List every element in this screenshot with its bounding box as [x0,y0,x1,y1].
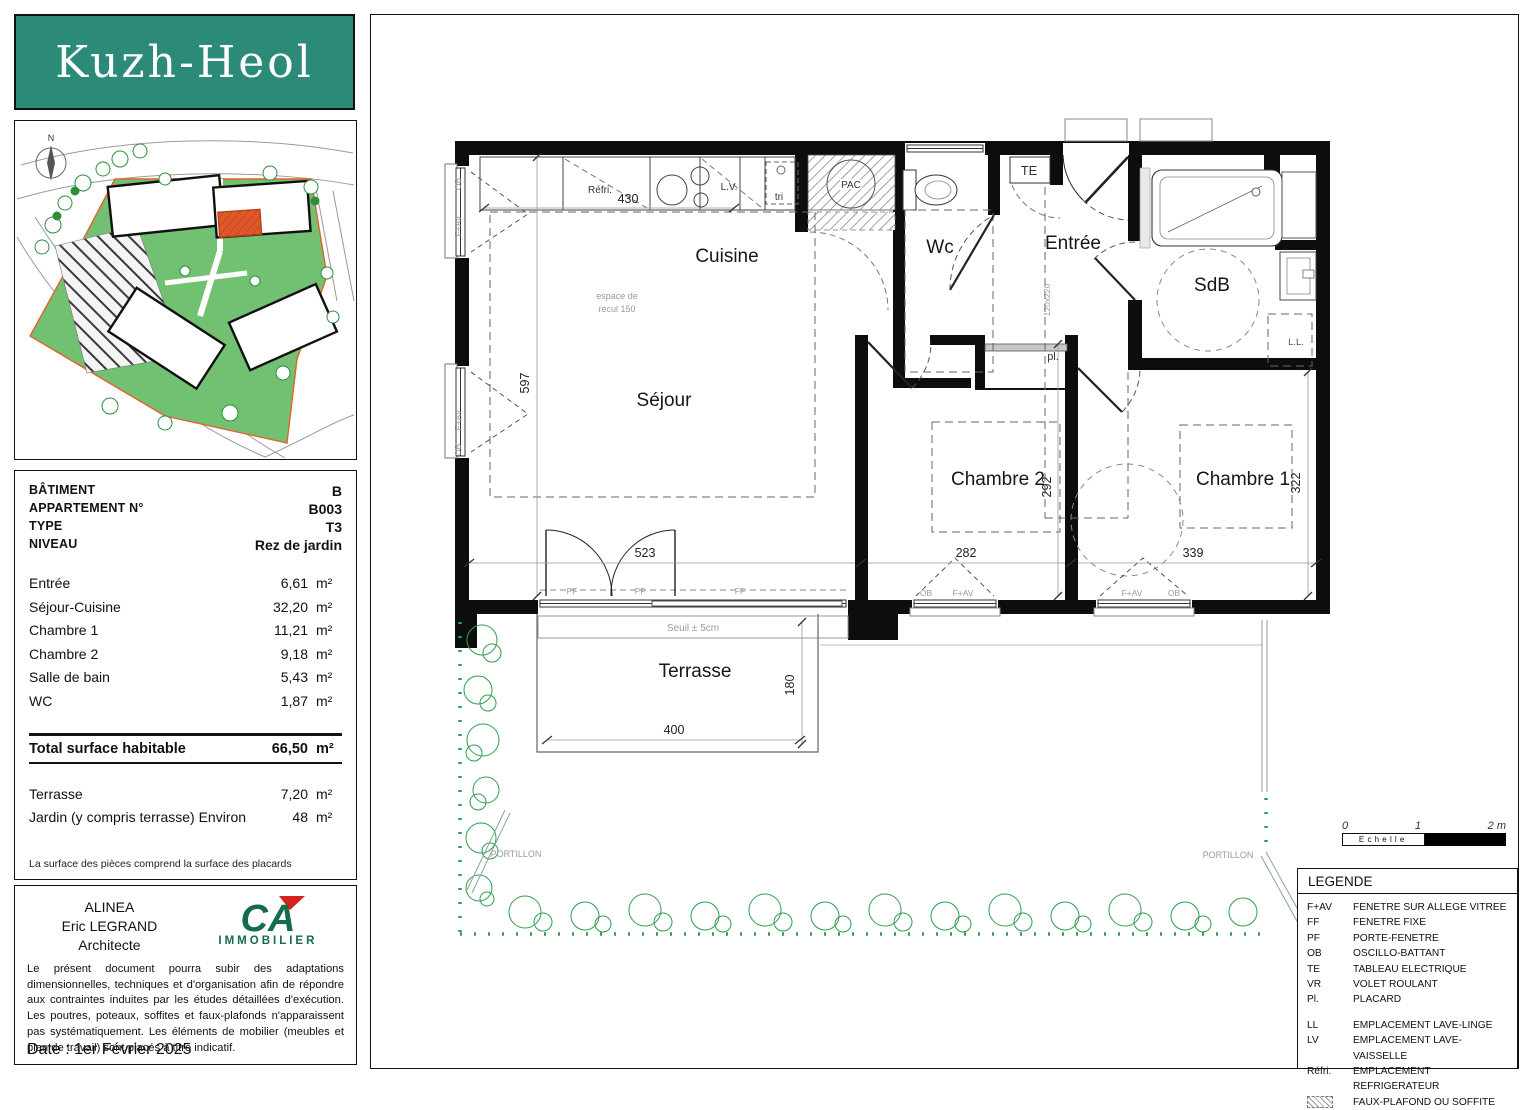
field-label: BÂTIMENT [29,483,95,499]
legend-desc: FENETRE SUR ALLEGE VITREE [1353,900,1508,915]
door-size-label: 120x220 [1042,283,1052,316]
scale-bar: 0 1 2 m Echelle [1342,820,1506,846]
architect-identity: ALINEA Eric LEGRAND Architecte [27,898,192,955]
site-plan-drawing: N [15,121,355,458]
recul-label-1: espace de [596,291,638,301]
info-field-row: TYPE T3 [29,519,342,535]
win-label-ob-l2: OB [453,444,463,457]
site-plan-thumbnail: N [14,120,357,460]
area-unit: m² [316,622,342,638]
area-value: 9,18 [256,646,308,662]
legend-panel: LEGENDE F+AV FENETRE SUR ALLEGE VITREE F… [1297,868,1518,1069]
dim-292: 292 [1040,477,1054,498]
legend-abbr: Réfri. [1307,1064,1353,1095]
area-row: Entrée 6,61 m² [29,575,342,591]
field-label: TYPE [29,519,62,535]
total-area-row: Total surface habitable 66,50 m² [29,733,342,764]
dim-282: 282 [956,546,977,560]
area-unit: m² [316,646,342,662]
room-label-entree: Entrée [1045,233,1101,254]
placard-label: pl. [1047,351,1059,363]
document-date: Date : 1er Février 2025 [27,1041,192,1059]
area-label: Séjour-Cuisine [29,599,256,615]
win-label-pf1: PF [567,586,578,596]
legend-item: FF FENETRE FIXE [1307,915,1508,930]
area-label: Chambre 2 [29,646,256,662]
room-label-sdb: SdB [1194,275,1230,296]
legend-desc: EMPLACEMENT LAVE-VAISSELLE [1353,1033,1508,1064]
win-label-ob-c2: OB [920,588,933,598]
area-label: Jardin (y compris terrasse) Environ [29,809,256,825]
dim-523: 523 [635,546,656,560]
bathtub [1140,168,1282,248]
room-label-terrasse: Terrasse [659,661,732,682]
legend-item: Réfri. EMPLACEMENT REFRIGERATEUR [1307,1064,1508,1095]
area-label: WC [29,693,256,709]
legend-abbr: F+AV [1307,900,1353,915]
area-label: Chambre 1 [29,622,256,638]
compass-icon: N [36,133,66,181]
field-value: B003 [309,501,342,517]
area-unit: m² [316,599,342,615]
legend-desc: FENETRE FIXE [1353,915,1508,930]
field-value: Rez de jardin [255,537,342,553]
architect-panel: ALINEA Eric LEGRAND Architecte CA IMMOBI… [14,885,357,1065]
surface-footnote: La surface des pièces comprend la surfac… [29,858,292,870]
architect-role: Architecte [27,936,192,955]
win-label-ob-c1: OB [1168,588,1181,598]
legend-desc: OSCILLO-BATTANT [1353,946,1508,961]
brand-banner: Kuzh-Heol [14,14,355,110]
fridge-label: Réfri. [588,185,612,196]
architect-firm: ALINEA [27,898,192,917]
legend-desc: EMPLACEMENT REFRIGERATEUR [1353,1064,1508,1095]
win-label-fav-l2: F+AV [453,409,463,430]
legend-abbr: OB [1307,946,1353,961]
area-label: Salle de bain [29,669,256,685]
highlighted-building-unit [218,209,262,237]
legend-desc: EMPLACEMENT LAVE-LINGE [1353,1018,1508,1033]
dim-400: 400 [664,723,685,737]
area-unit: m² [316,669,342,685]
apartment-info-panel: BÂTIMENT B APPARTEMENT N° B003 TYPE T3 N… [14,470,357,880]
heat-pump-label: PAC [841,180,861,191]
area-label: Entrée [29,575,256,591]
portillon-left-label: PORTILLON [491,849,542,859]
garden-hedges [460,622,1266,934]
legend-item: OB OSCILLO-BATTANT [1307,946,1508,961]
garden-fence [467,620,1313,941]
legend-title: LEGENDE [1298,869,1517,894]
info-field-row: BÂTIMENT B [29,483,342,499]
area-value: 6,61 [256,575,308,591]
dim-430: 430 [618,192,639,206]
legend-abbr: Pl. [1307,992,1353,1007]
field-label: APPARTEMENT N° [29,501,144,517]
architect-name: Eric LEGRAND [27,917,192,936]
area-value: 11,21 [256,622,308,638]
area-value: 7,20 [256,786,308,802]
area-value: 5,43 [256,669,308,685]
outdoor-areas-list: Terrasse 7,20 m² Jardin (y compris terra… [29,786,342,826]
scale-label: Echelle [1342,833,1425,846]
win-label-ob-l1: OB [453,178,463,191]
dim-322: 322 [1289,473,1303,494]
soffit-hatch-icon [1307,1096,1333,1108]
dim-339: 339 [1183,546,1204,560]
area-unit: m² [316,575,342,591]
legend-item: F+AV FENETRE SUR ALLEGE VITREE [1307,900,1508,915]
room-label-sejour: Séjour [637,390,693,411]
room-label-chambre2: Chambre 2 [951,469,1045,490]
tri-label: tri [775,192,783,203]
legend-item: FAUX-PLAFOND OU SOFFITE [1307,1095,1508,1110]
legend-desc: PLACARD [1353,992,1508,1007]
legend-desc: FAUX-PLAFOND OU SOFFITE [1353,1095,1508,1110]
win-label-pf2: PF [635,586,646,596]
compass-north-label: N [48,133,55,143]
win-label-fav-c1: F+AV [1122,588,1143,598]
washer-label: L.L. [1288,337,1304,348]
area-label: Terrasse [29,786,256,802]
field-label: NIVEAU [29,537,77,553]
area-row: Chambre 1 11,21 m² [29,622,342,638]
dishwasher-label: L.V. [721,182,738,193]
legend-desc: PORTE-FENETRE [1353,931,1508,946]
brand-title: Kuzh-Heol [55,37,314,88]
legend-item: PF PORTE-FENETRE [1307,931,1508,946]
recul-label-2: recul 150 [598,304,635,314]
field-value: B [332,483,342,499]
legend-abbr: PF [1307,931,1353,946]
dim-180: 180 [783,675,797,696]
electrical-panel-label: TE [1021,163,1038,178]
portillon-right-label: PORTILLON [1203,850,1254,860]
plan-labels: Cuisine Séjour Wc Entrée SdB Chambre 2 C… [453,163,1304,860]
area-value: 48 [256,809,308,825]
soffit-hatch [808,155,895,230]
legend-item: VR VOLET ROULANT [1307,977,1508,992]
legend-item: Pl. PLACARD [1307,992,1508,1007]
area-unit: m² [316,693,342,709]
area-row: Terrasse 7,20 m² [29,786,342,802]
legend-abbr: FF [1307,915,1353,930]
room-areas-list: Entrée 6,61 m² Séjour-Cuisine 32,20 m² C… [29,575,342,709]
ca-immobilier-logo: CA IMMOBILIER [192,893,344,955]
area-row: Salle de bain 5,43 m² [29,669,342,685]
area-unit: m² [316,786,342,802]
area-row: Chambre 2 9,18 m² [29,646,342,662]
legend-abbr: VR [1307,977,1353,992]
scale-tick-0: 0 [1342,820,1348,832]
room-label-chambre1: Chambre 1 [1196,469,1290,490]
ca-logo-icon: CA [213,893,323,937]
room-label-wc: Wc [926,237,953,258]
win-label-fav-l1: F+AV [453,215,463,236]
kitchen-counter [480,157,798,210]
scale-bar-black-segment [1425,833,1507,846]
area-row: Séjour-Cuisine 32,20 m² [29,599,342,615]
area-row: Jardin (y compris terrasse) Environ 48 m… [29,809,342,825]
legend-item: LL EMPLACEMENT LAVE-LINGE [1307,1018,1508,1033]
legend-abbr: LL [1307,1018,1353,1033]
field-value: T3 [326,519,342,535]
room-label-cuisine: Cuisine [695,246,758,267]
dim-597: 597 [518,373,532,394]
scale-tick-2: 2 m [1488,820,1506,832]
legend-abbr: TE [1307,962,1353,977]
total-unit: m² [316,741,342,757]
ca-logo-letters: CA [240,898,295,937]
scale-tick-1: 1 [1415,820,1421,832]
seuil-label: Seuil ± 5cm [667,623,719,634]
info-field-row: NIVEAU Rez de jardin [29,537,342,553]
area-unit: m² [316,809,342,825]
legend-desc: VOLET ROULANT [1353,977,1508,992]
win-label-fav-c2: F+AV [953,588,974,598]
info-field-row: APPARTEMENT N° B003 [29,501,342,517]
ca-logo-subtitle: IMMOBILIER [218,935,317,947]
area-value: 1,87 [256,693,308,709]
legend-item: LV EMPLACEMENT LAVE-VAISSELLE [1307,1033,1508,1064]
win-label-ff: FF [735,586,745,596]
toilet [903,170,957,210]
total-label: Total surface habitable [29,741,256,757]
legend-desc: TABLEAU ELECTRIQUE [1353,962,1508,977]
area-row: WC 1,87 m² [29,693,342,709]
total-value: 66,50 [256,741,308,757]
bathroom-sink [1280,172,1316,300]
area-value: 32,20 [256,599,308,615]
legend-item: TE TABLEAU ELECTRIQUE [1307,962,1508,977]
legend-abbr: LV [1307,1033,1353,1064]
